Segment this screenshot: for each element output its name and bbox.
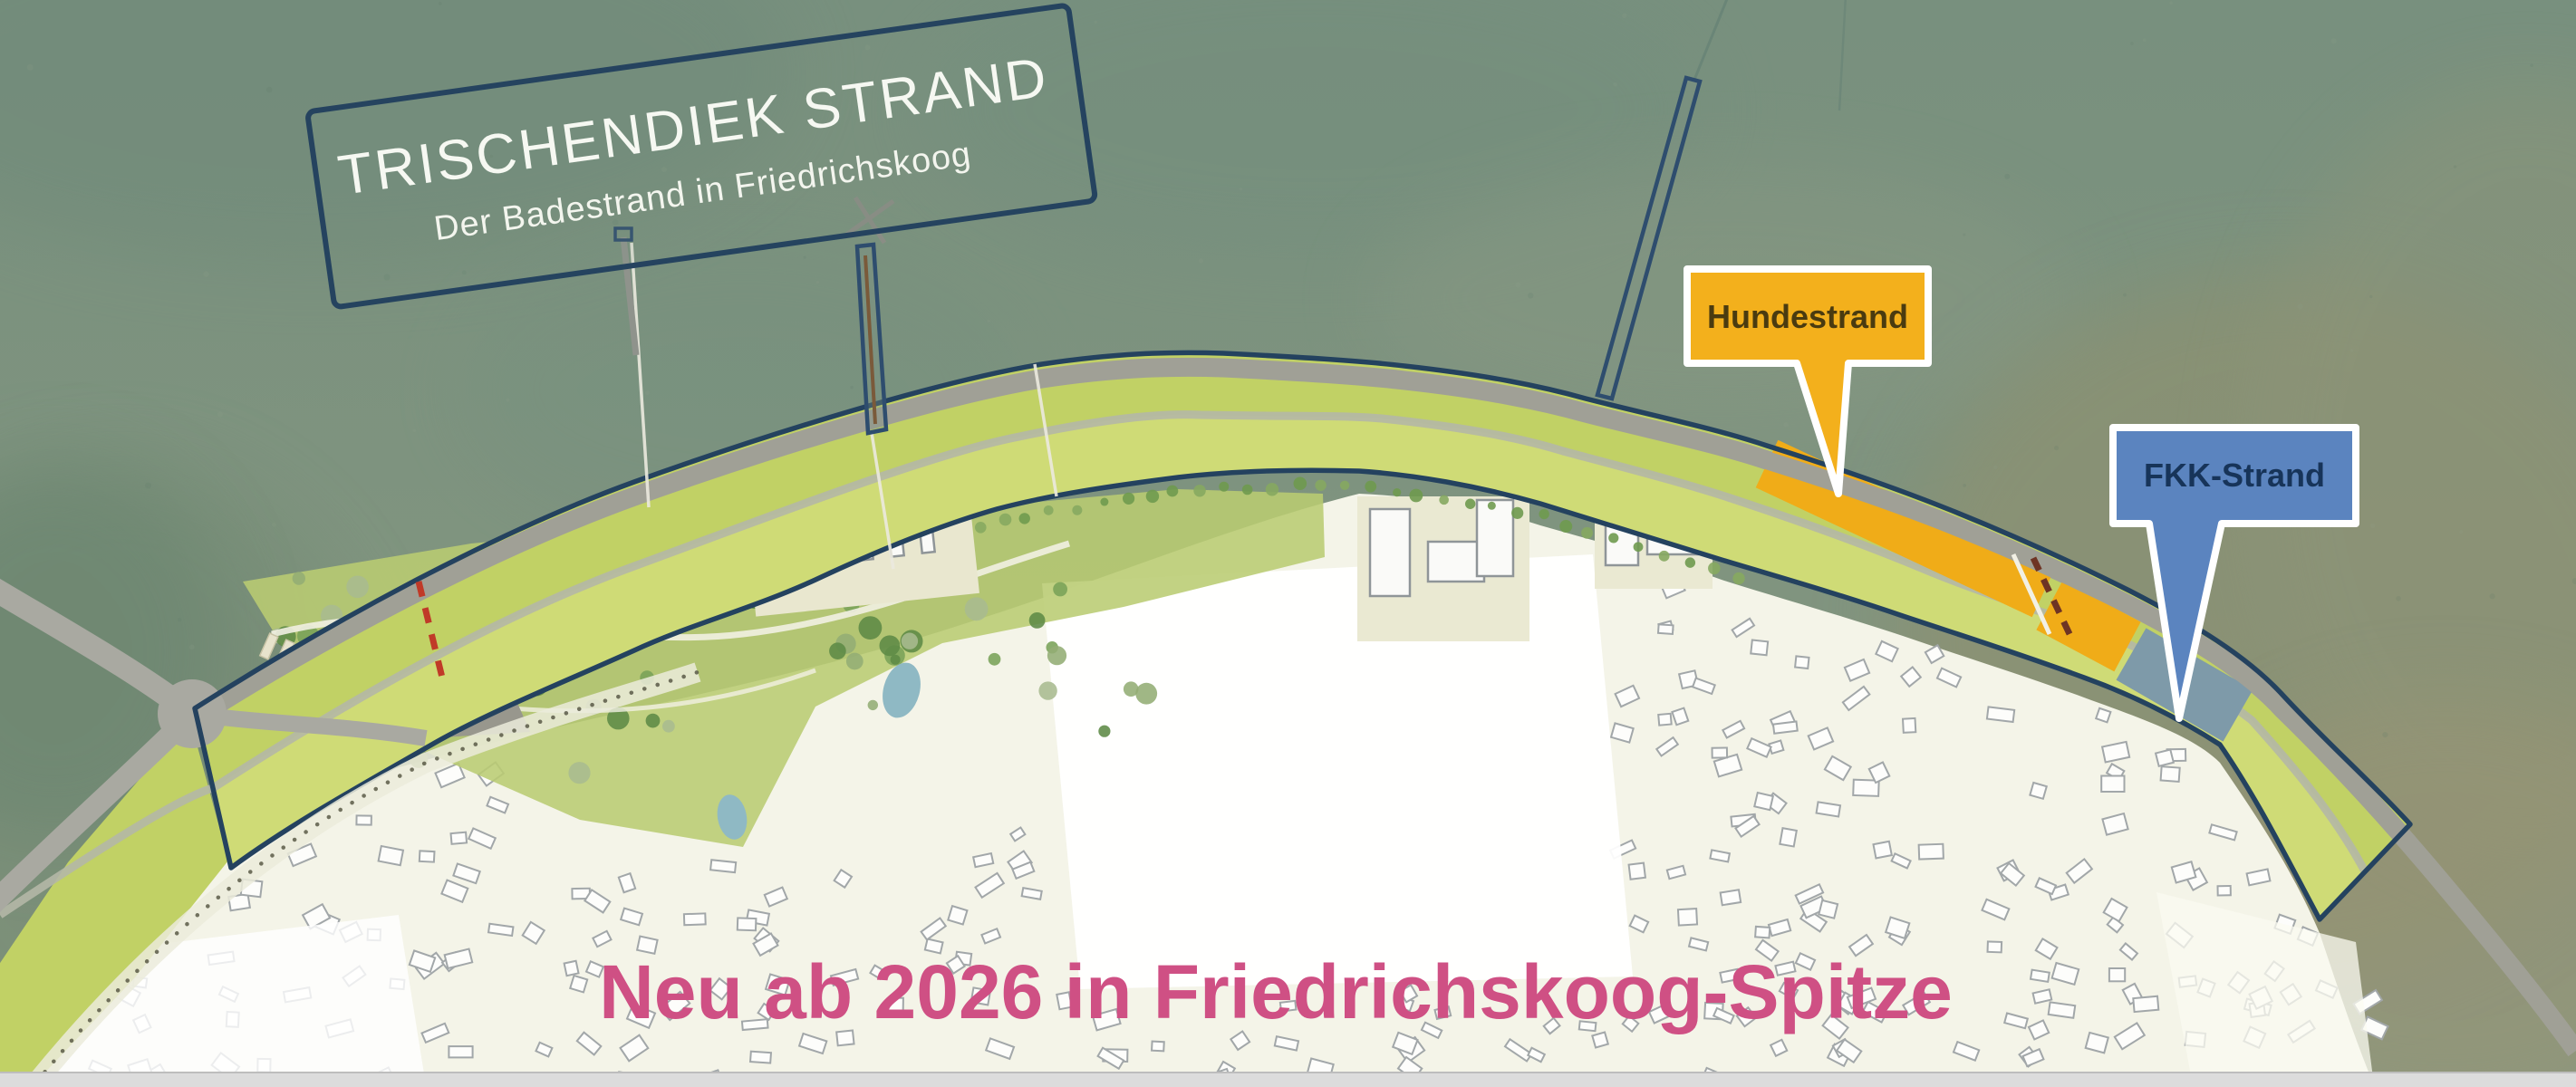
bottom-bar [0,1073,2576,1087]
headline-text: Neu ab 2026 in Friedrichskoog-Spitze [599,949,1953,1034]
site-plan-map: TRISCHENDIEK STRAND Der Badestrand in Fr… [0,0,2576,1087]
dog-beach-flag-label: Hundestrand [1707,298,1908,335]
map-canvas: TRISCHENDIEK STRAND Der Badestrand in Fr… [0,0,2576,1087]
nudist-beach-flag-label: FKK-Strand [2144,457,2325,494]
